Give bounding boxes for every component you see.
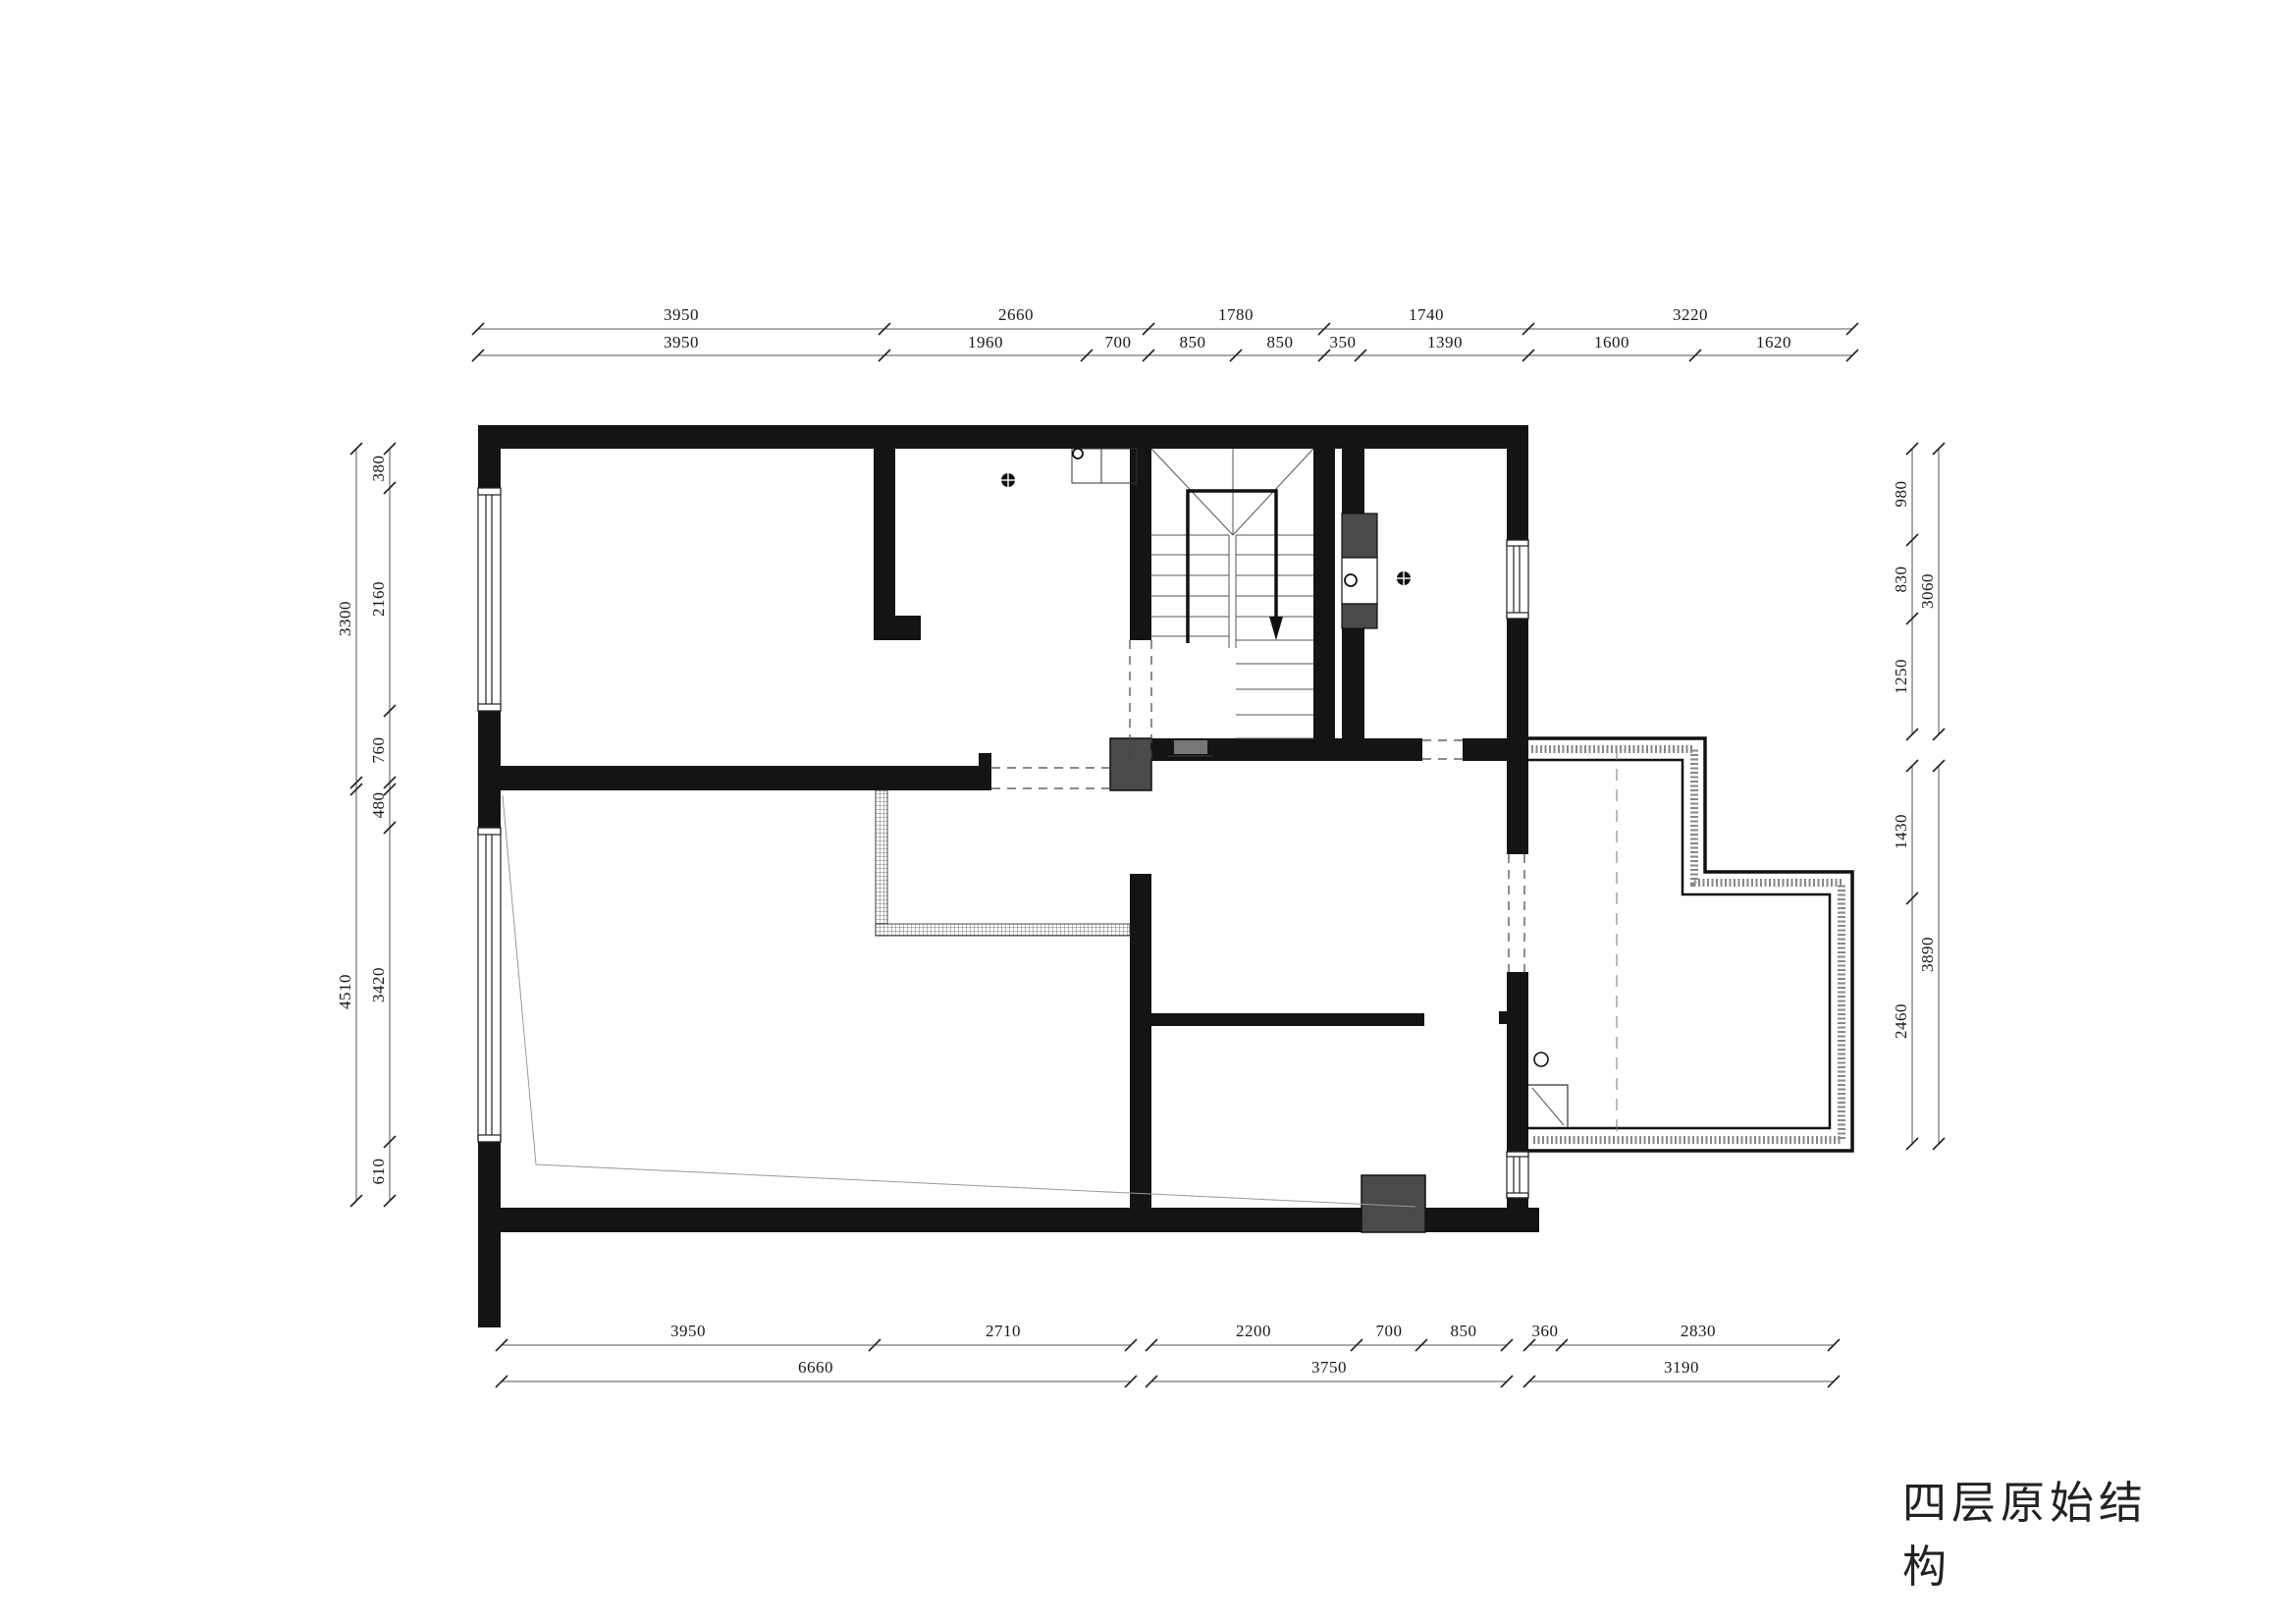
- drawing-title: 四层原始结构: [1902, 1467, 2177, 1595]
- dimension-label: 3950: [664, 333, 699, 352]
- dimension-label: 700: [1105, 333, 1132, 352]
- floor-plan-sheet: 39502660178017403220 3950196070085085035…: [0, 0, 2296, 1623]
- dimension-label: 1600: [1594, 333, 1629, 352]
- dimension-label: 1430: [1892, 814, 1911, 849]
- dimension-label: 850: [1267, 333, 1294, 352]
- dimension-label: 1960: [968, 333, 1003, 352]
- dimension-label: 3420: [369, 967, 389, 1002]
- dimension-label: 980: [1892, 481, 1911, 508]
- wall-openings: [991, 640, 1524, 972]
- dimension-label: 850: [1451, 1322, 1477, 1341]
- dimension-label: 2160: [369, 581, 389, 617]
- dimension-label: 850: [1180, 333, 1206, 352]
- dimension-label: 760: [369, 737, 389, 764]
- dimension-label: 1740: [1409, 305, 1444, 325]
- dimension-label: 3950: [664, 305, 699, 325]
- dimension-label: 360: [1532, 1322, 1559, 1341]
- dimension-label: 1250: [1892, 659, 1911, 694]
- floor-drain-icon: [1397, 571, 1411, 585]
- dimension-label: 3890: [1918, 937, 1938, 972]
- floor-plan-drawing: [0, 0, 2296, 1623]
- dimension-label: 2660: [998, 305, 1034, 325]
- dimension-label: 380: [369, 456, 389, 482]
- window-right-lower: [1507, 1152, 1528, 1198]
- terrace-door: [1528, 1085, 1568, 1128]
- dimension-label: 350: [1330, 333, 1357, 352]
- stair-guide-line: [1188, 491, 1276, 643]
- dimension-label: 2460: [1892, 1003, 1911, 1039]
- terrace-railing-hatch: [1531, 749, 1842, 1140]
- window-left-upper: [478, 488, 501, 711]
- dimension-label: 830: [1892, 567, 1911, 593]
- dimension-label: 3060: [1918, 573, 1938, 609]
- stair-threshold: [1174, 740, 1207, 754]
- light-partitions: [876, 790, 1130, 936]
- dimension-label: 2830: [1681, 1322, 1716, 1341]
- window-left-lower: [478, 828, 501, 1142]
- pipe-riser-icon: [1345, 574, 1357, 586]
- dimension-label: 3220: [1673, 305, 1708, 325]
- dimension-label: 4510: [336, 974, 355, 1009]
- floor-drain-icon: [1001, 473, 1015, 487]
- dimension-label: 610: [369, 1159, 389, 1185]
- fixtures: [503, 449, 1415, 1207]
- stair-down-arrow-icon: [1269, 617, 1283, 640]
- ceiling-slope-lines: [503, 795, 1415, 1207]
- dimension-label: 3950: [670, 1322, 706, 1341]
- dimension-label: 1390: [1427, 333, 1463, 352]
- dimension-label: 2710: [986, 1322, 1021, 1341]
- dimension-label: 700: [1376, 1322, 1403, 1341]
- terrace: [1528, 738, 1852, 1151]
- dimension-label: 2200: [1236, 1322, 1271, 1341]
- structural-columns: [1110, 738, 1425, 1232]
- terrace-inner-edge: [1528, 760, 1830, 1128]
- dimension-label: 3750: [1311, 1358, 1347, 1378]
- staircase: [1151, 449, 1313, 756]
- dimension-label: 3190: [1664, 1358, 1699, 1378]
- drain-pipe-icon: [1534, 1053, 1548, 1066]
- window-right-kitchen: [1507, 540, 1528, 619]
- dimension-label: 480: [369, 792, 389, 819]
- pipe-riser-icon: [1073, 449, 1083, 459]
- dimension-label: 1780: [1218, 305, 1254, 325]
- dimension-label: 3300: [336, 601, 355, 636]
- dimension-label: 1620: [1756, 333, 1791, 352]
- stair-treads: [1151, 535, 1313, 738]
- kitchen-shaft: [1342, 514, 1377, 628]
- dimension-label: 6660: [798, 1358, 833, 1378]
